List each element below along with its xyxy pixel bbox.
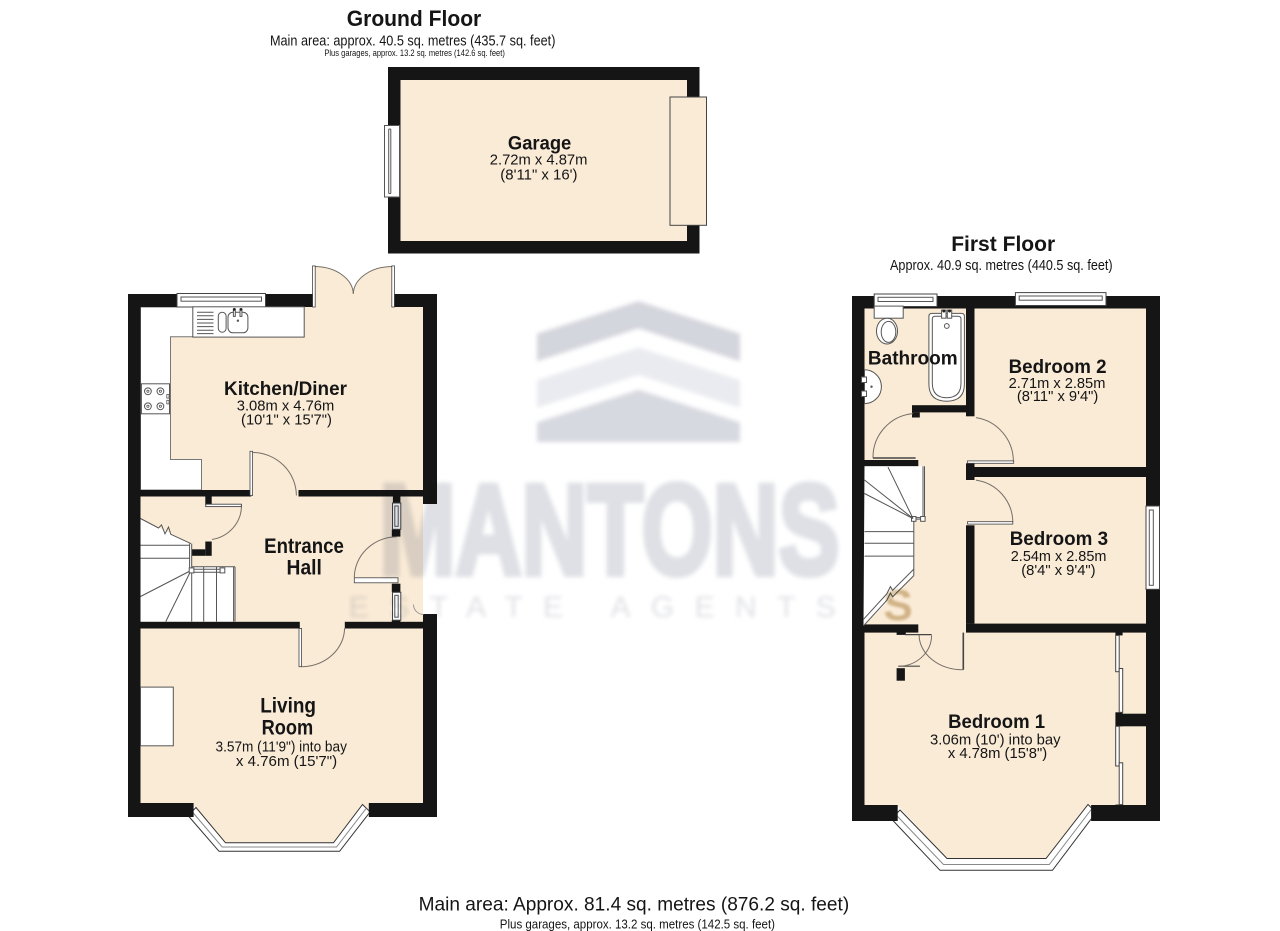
svg-text:Approx. 40.9 sq. metres (440.5: Approx. 40.9 sq. metres (440.5 sq. feet) [890, 257, 1113, 274]
svg-text:Living: Living [260, 694, 316, 718]
svg-text:MANTONS: MANTONS [380, 459, 840, 602]
svg-text:Main area: Approx. 81.4 sq. me: Main area: Approx. 81.4 sq. metres (876.… [419, 894, 850, 916]
svg-text:Ground Floor: Ground Floor [347, 6, 482, 31]
svg-text:Bedroom 3: Bedroom 3 [1010, 529, 1108, 550]
svg-text:Main area: approx. 40.5 sq. me: Main area: approx. 40.5 sq. metres (435.… [270, 32, 556, 49]
svg-text:(8'11" x 9'4"): (8'11" x 9'4") [1017, 388, 1099, 405]
svg-text:(8'4" x 9'4"): (8'4" x 9'4") [1021, 562, 1095, 579]
svg-text:x 4.78m (15'8"): x 4.78m (15'8") [948, 745, 1047, 762]
svg-text:Entrance: Entrance [264, 534, 344, 558]
svg-text:Bathroom: Bathroom [868, 349, 958, 370]
svg-text:First Floor: First Floor [951, 233, 1055, 256]
svg-text:Bedroom 1: Bedroom 1 [948, 712, 1045, 733]
svg-text:(10'1" x 15'7"): (10'1" x 15'7") [241, 411, 332, 428]
svg-text:Plus garages, approx. 13.2 sq.: Plus garages, approx. 13.2 sq. metres (1… [324, 48, 505, 58]
svg-text:Room: Room [262, 715, 314, 739]
svg-text:Hall: Hall [287, 556, 322, 580]
svg-text:x 4.76m (15'7"): x 4.76m (15'7") [236, 753, 337, 770]
svg-text:(8'11" x 16'): (8'11" x 16') [500, 167, 577, 184]
svg-text:Plus garages, approx. 13.2 sq.: Plus garages, approx. 13.2 sq. metres (1… [500, 916, 775, 931]
svg-text:ESTATE AGENTS: ESTATE AGENTS [349, 591, 856, 624]
svg-text:S: S [883, 581, 912, 630]
